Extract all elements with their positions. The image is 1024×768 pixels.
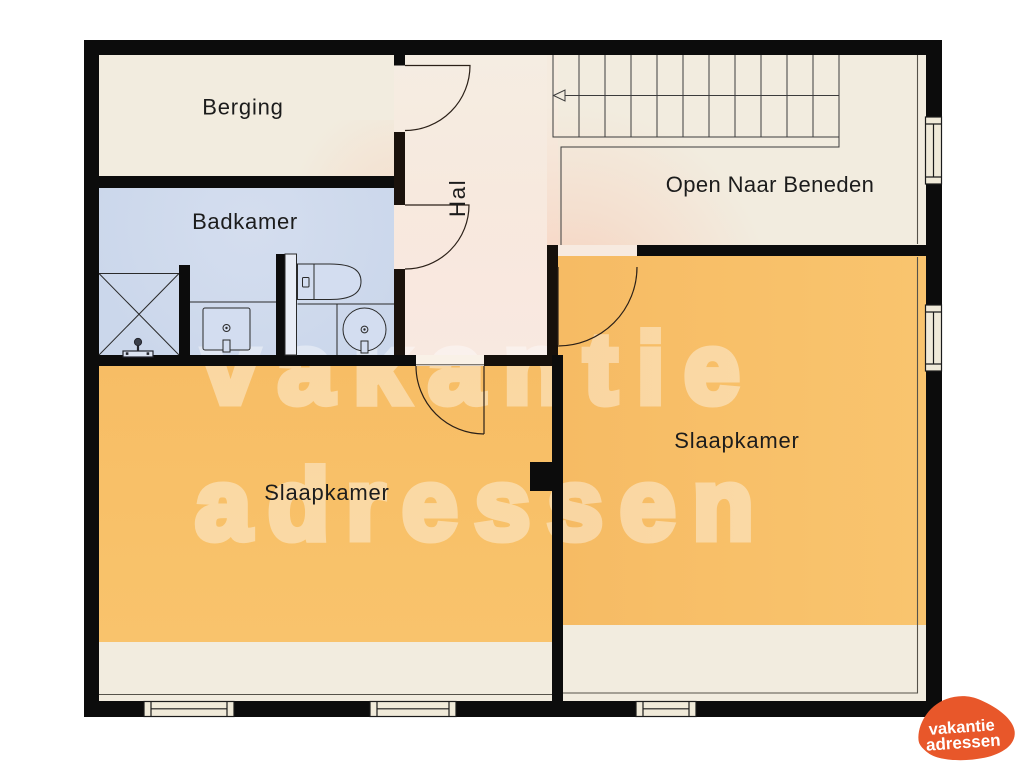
svg-text:Badkamer: Badkamer xyxy=(192,209,298,234)
svg-text:Berging: Berging xyxy=(202,95,283,120)
svg-text:Slaapkamer: Slaapkamer xyxy=(674,428,799,453)
svg-text:Open Naar Beneden: Open Naar Beneden xyxy=(666,172,875,197)
svg-text:Slaapkamer: Slaapkamer xyxy=(264,480,389,505)
svg-text:adressen: adressen xyxy=(195,449,770,561)
svg-text:Hal: Hal xyxy=(445,179,470,217)
